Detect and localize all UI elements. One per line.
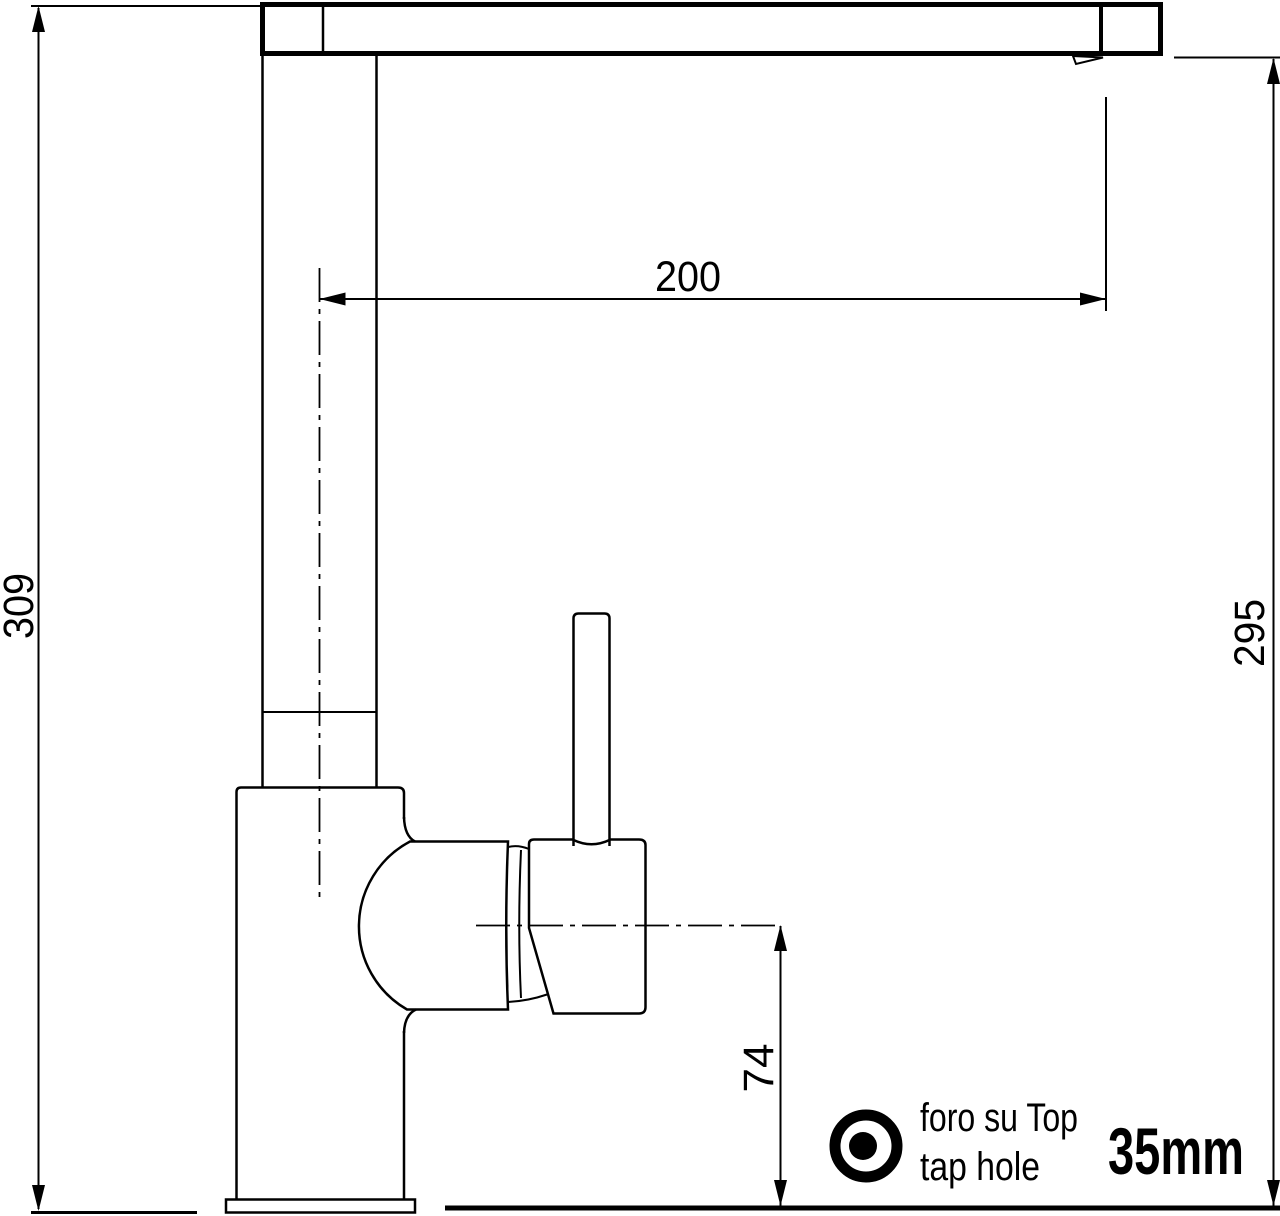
tap-hole-size-label: 35mm: [1108, 1114, 1244, 1188]
tap-hole-label-italian: foro su Top: [920, 1096, 1078, 1140]
dim-value-overall-height: 309: [0, 573, 43, 639]
handle-body: [529, 840, 646, 1014]
arrowhead-up: [1267, 58, 1280, 84]
worktop-line: [31, 1208, 1280, 1213]
technical-drawing-canvas: 309 200 295 74 foro su Top tap hole 35mm: [0, 0, 1280, 1216]
arrowhead-down: [1267, 1180, 1280, 1206]
dim-value-body-center-height: 74: [735, 1044, 783, 1093]
dimension-spout-reach: 200: [320, 97, 1107, 311]
faucet-spout: [263, 5, 1161, 65]
tap-hole-label-english: tap hole: [920, 1145, 1040, 1189]
faucet-body-column: [237, 788, 405, 1200]
cartridge-seam-line: [519, 850, 521, 998]
dim-value-spout-reach: 200: [655, 253, 721, 301]
body-fillet-top: [404, 817, 415, 842]
base-plate: [226, 1200, 415, 1213]
arrowhead-down: [774, 1180, 787, 1206]
aerator-outlet: [1073, 56, 1103, 64]
faucet-riser-pipe: [262, 55, 377, 787]
tap-hole-icon-center-dot: [849, 1132, 877, 1160]
dimension-body-center-height: 74: [735, 925, 787, 1206]
arrowhead-right: [1080, 293, 1106, 306]
dim-value-spout-height: 295: [1226, 599, 1274, 667]
neck-bottom-line: [508, 995, 547, 1003]
neck-top-line: [508, 846, 529, 849]
dimension-overall-height: 309: [0, 6, 262, 1211]
tap-hole-annotation: foro su Top tap hole 35mm: [835, 1096, 1244, 1189]
faucet-technical-drawing: 309 200 295 74 foro su Top tap hole 35mm: [0, 0, 1280, 1216]
arrowhead-down: [32, 1185, 45, 1211]
arrowhead-up: [774, 925, 787, 951]
arrowhead-up: [32, 6, 45, 32]
arrowhead-left: [320, 293, 346, 306]
dimension-spout-height: 295: [1174, 58, 1280, 1207]
body-fillet-bottom: [404, 1010, 416, 1034]
handle-lever: [574, 614, 610, 847]
